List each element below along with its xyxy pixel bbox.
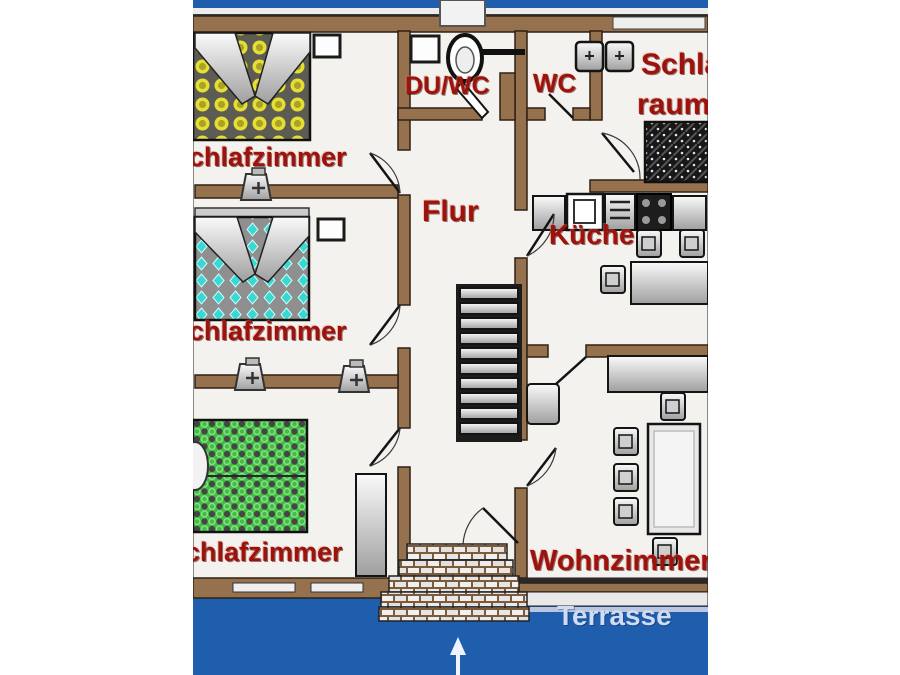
window [314,35,340,57]
chair-icon [661,393,685,420]
entrance-arrow-icon [450,637,466,675]
armchair [527,384,559,424]
sideboard [608,356,708,392]
table [631,262,708,304]
room-label-hallway: Flur [422,197,479,227]
chair-icon [637,230,661,257]
roof-bay [440,0,485,26]
room-label-wc: WC [533,70,576,96]
stove-icon [637,194,671,230]
room-label-sleeping-room-line2: raum [637,90,708,120]
chair-icon [614,464,638,491]
room-label-shower-wc: DU/WC [405,74,490,99]
window [411,36,439,62]
chair-icon [601,266,625,293]
window-band [311,583,363,592]
window [318,219,344,240]
room-label-bedroom-middle: Schlafzimmer [193,318,347,345]
window-band [233,583,295,592]
bed-icon [645,122,708,182]
floorplan-scan: Schlafzimmer Schlafzimmer Schlafzimmer D… [193,0,708,675]
chair-icon [680,230,704,257]
sink-icon [606,42,633,71]
page: { "palette": { "page-bg": "#ffffff", "sc… [0,0,900,675]
room-label-living-room: Wohnzimmer [530,547,708,576]
room-label-bedroom-bottom: Schlafzimmer [193,539,343,566]
chair-icon [614,498,638,525]
headboard [195,208,309,217]
sink-icon [576,42,603,71]
chair-icon [614,428,638,455]
wardrobe [356,474,386,576]
terrace-label: Terrasse [557,602,672,630]
window-band [613,17,705,29]
room-label-bedroom-top: Schlafzimmer [193,144,347,171]
room-label-kitchen: Küche [549,221,635,249]
room-label-sleeping-room-line1: Schlaf [641,50,708,80]
